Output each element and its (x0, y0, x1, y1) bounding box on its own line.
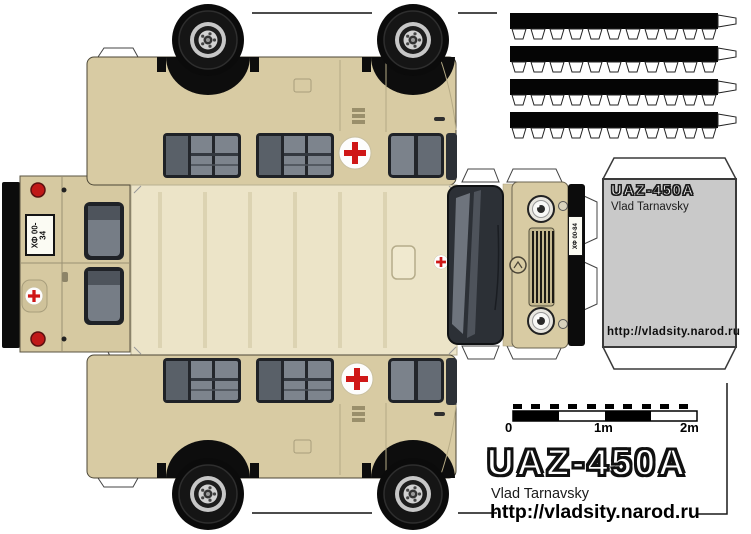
box-flap (603, 158, 736, 179)
grille (529, 228, 554, 306)
rear-license-plate: ХФ 00-34 (25, 214, 55, 256)
scale-bar (513, 404, 697, 421)
tread-strip-2 (510, 46, 736, 72)
marker-light (62, 337, 67, 342)
tail-light-icon (31, 332, 45, 346)
windshield (448, 186, 503, 344)
scale-label-0: 0 (505, 420, 512, 435)
wheel-bottom-left (172, 458, 244, 530)
front-license-plate-text: ХФ 00-84 (572, 223, 578, 249)
vent-louver (352, 108, 365, 124)
red-cross-icon (339, 137, 371, 169)
marker-light (62, 188, 67, 193)
turn-signal (559, 320, 568, 329)
headlight-icon (528, 196, 554, 222)
glue-tab (98, 478, 138, 487)
tread-strip-3 (510, 79, 736, 105)
rear-bumper (2, 182, 20, 348)
windshield-edge (446, 358, 457, 405)
front-license-plate: ХФ 00-84 (568, 216, 583, 256)
box-title: UAZ-450A (611, 182, 695, 199)
box-flap (603, 347, 736, 369)
vent-louver (352, 406, 365, 422)
papercraft-sheet: ХФ 00-34 ХФ 00-84 UAZ-450A Vlad Tarnavsk… (0, 0, 751, 534)
front-bumper (568, 184, 585, 346)
roof-hatch (392, 246, 415, 279)
door-handle (434, 412, 445, 416)
sheet-url: http://vladsity.narod.ru (490, 501, 700, 524)
wheel-bottom-right (377, 458, 449, 530)
cab-door-window (388, 358, 444, 403)
red-cross-icon (341, 363, 373, 395)
tread-strips (510, 13, 736, 138)
rear-view-panel (2, 164, 142, 364)
page-corner-mark (697, 383, 727, 514)
glue-tab (507, 169, 562, 182)
box-url: http://vladsity.narod.ru (607, 326, 740, 338)
box-author: Vlad Tarnavsky (611, 201, 689, 213)
rear-door-window (84, 267, 124, 325)
door-latch (62, 272, 68, 282)
side-window (163, 133, 241, 178)
front-view-panel (448, 169, 597, 359)
sheet-title: UAZ-450A (487, 444, 688, 481)
tread-strip-1 (510, 13, 736, 39)
tail-light-icon (31, 183, 45, 197)
side-window (163, 358, 241, 403)
sheet-author: Vlad Tarnavsky (491, 486, 589, 502)
wheel-top-right (377, 4, 449, 76)
scale-label-1m: 1m (594, 420, 613, 435)
rear-door-window (84, 202, 124, 260)
uaz-emblem-icon (510, 257, 526, 273)
glue-tab (584, 196, 597, 244)
red-cross-icon (434, 255, 448, 269)
headlight-icon (528, 308, 554, 334)
roof-panel (131, 185, 457, 355)
glue-tab (462, 169, 499, 182)
rear-license-plate-text: ХФ 00-34 (32, 222, 49, 248)
wheel-top-left (172, 4, 244, 76)
side-window (256, 358, 334, 403)
glue-tab (98, 48, 138, 57)
turn-signal (559, 202, 568, 211)
glue-tab (584, 262, 597, 310)
windshield-edge (446, 133, 457, 180)
cab-door-window (388, 133, 444, 178)
door-handle (434, 117, 445, 121)
glue-tab (462, 346, 499, 359)
tread-strip-4 (510, 112, 736, 138)
scale-label-2m: 2m (680, 420, 699, 435)
side-window (256, 133, 334, 178)
red-cross-icon (25, 287, 43, 305)
